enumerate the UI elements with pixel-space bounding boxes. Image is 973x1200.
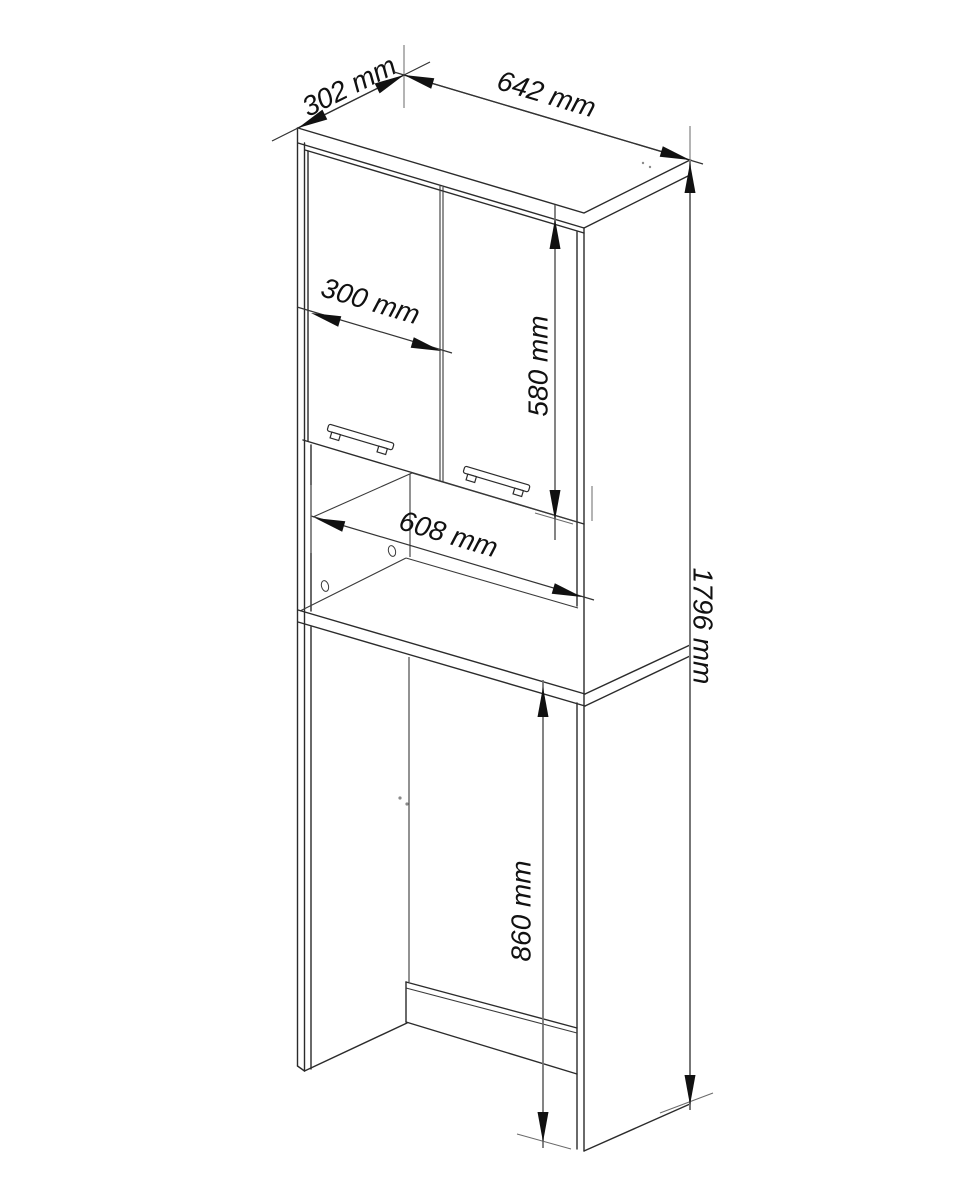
door-handle-right [461, 466, 530, 498]
dimension-niche-width-608: 608 mm [311, 485, 594, 600]
dimension-label-860: 860 mm [505, 860, 536, 961]
arrowhead [311, 313, 341, 327]
right-panel-bottom-edge [584, 1104, 690, 1151]
door-divider-gap [440, 186, 443, 482]
plinth-top-band [406, 988, 577, 1033]
plinth-top-edge [406, 982, 577, 1028]
door-handle-left [325, 424, 394, 456]
cabinet-drawing-svg: 302 mm 642 mm 300 mm 580 mm 608 mm 860 m… [0, 0, 973, 1200]
arrowhead [315, 518, 345, 532]
arrowhead [550, 490, 561, 520]
drill-hole-dot [398, 796, 401, 799]
dimension-label-642: 642 mm [494, 65, 600, 124]
surface-speck [642, 162, 644, 164]
niche-floor-left-edge [300, 558, 406, 611]
arrowhead [404, 75, 434, 89]
cabinet-left-side-panel [298, 128, 305, 1071]
dimension-label-608: 608 mm [396, 505, 502, 564]
shelf-pin-hole [320, 580, 330, 592]
arrowhead [411, 337, 441, 351]
arrowhead [685, 163, 696, 193]
middle-shelf-front-top-edge [298, 610, 585, 694]
door-top-edge [305, 150, 584, 233]
floor-left-junction [305, 1023, 408, 1071]
dimension-top-depth-302: 302 mm [272, 45, 430, 141]
niche-ceiling-left-junction [313, 473, 412, 517]
dimension-top-width-642: 642 mm [394, 65, 703, 164]
technical-drawing: 302 mm 642 mm 300 mm 580 mm 608 mm 860 m… [0, 0, 973, 1200]
arrowhead [538, 687, 549, 717]
dimension-label-1796: 1796 mm [688, 568, 719, 685]
arrowhead [660, 146, 690, 160]
dimension-door-width-300: 300 mm [297, 272, 452, 353]
cabinet-right-side-panel [577, 175, 690, 1151]
dimension-total-height-1796: 1796 mm [660, 160, 719, 1113]
middle-shelf-side-top-edge [585, 645, 690, 694]
niche-floor-back-edge [406, 558, 578, 608]
middle-shelf-panel [298, 610, 690, 706]
shelf-pin-hole [387, 545, 397, 557]
dimension-machine-niche-height-860: 860 mm [505, 680, 571, 1149]
dimension-label-580: 580 mm [522, 315, 553, 416]
top-panel-side-band [584, 175, 690, 228]
left-panel-bottom-edge [298, 1066, 305, 1071]
middle-shelf-side-bottom-edge [585, 656, 690, 706]
extension-line [660, 1093, 713, 1113]
washing-machine-niche [305, 627, 410, 1071]
top-panel-front-band [298, 143, 584, 228]
surface-speck [649, 166, 651, 168]
drill-hole-dot [405, 802, 408, 805]
arrowhead [538, 1112, 549, 1142]
plinth-bottom-edge [406, 1022, 577, 1074]
dimension-door-height-580: 580 mm [522, 205, 573, 540]
plinth [406, 982, 577, 1074]
